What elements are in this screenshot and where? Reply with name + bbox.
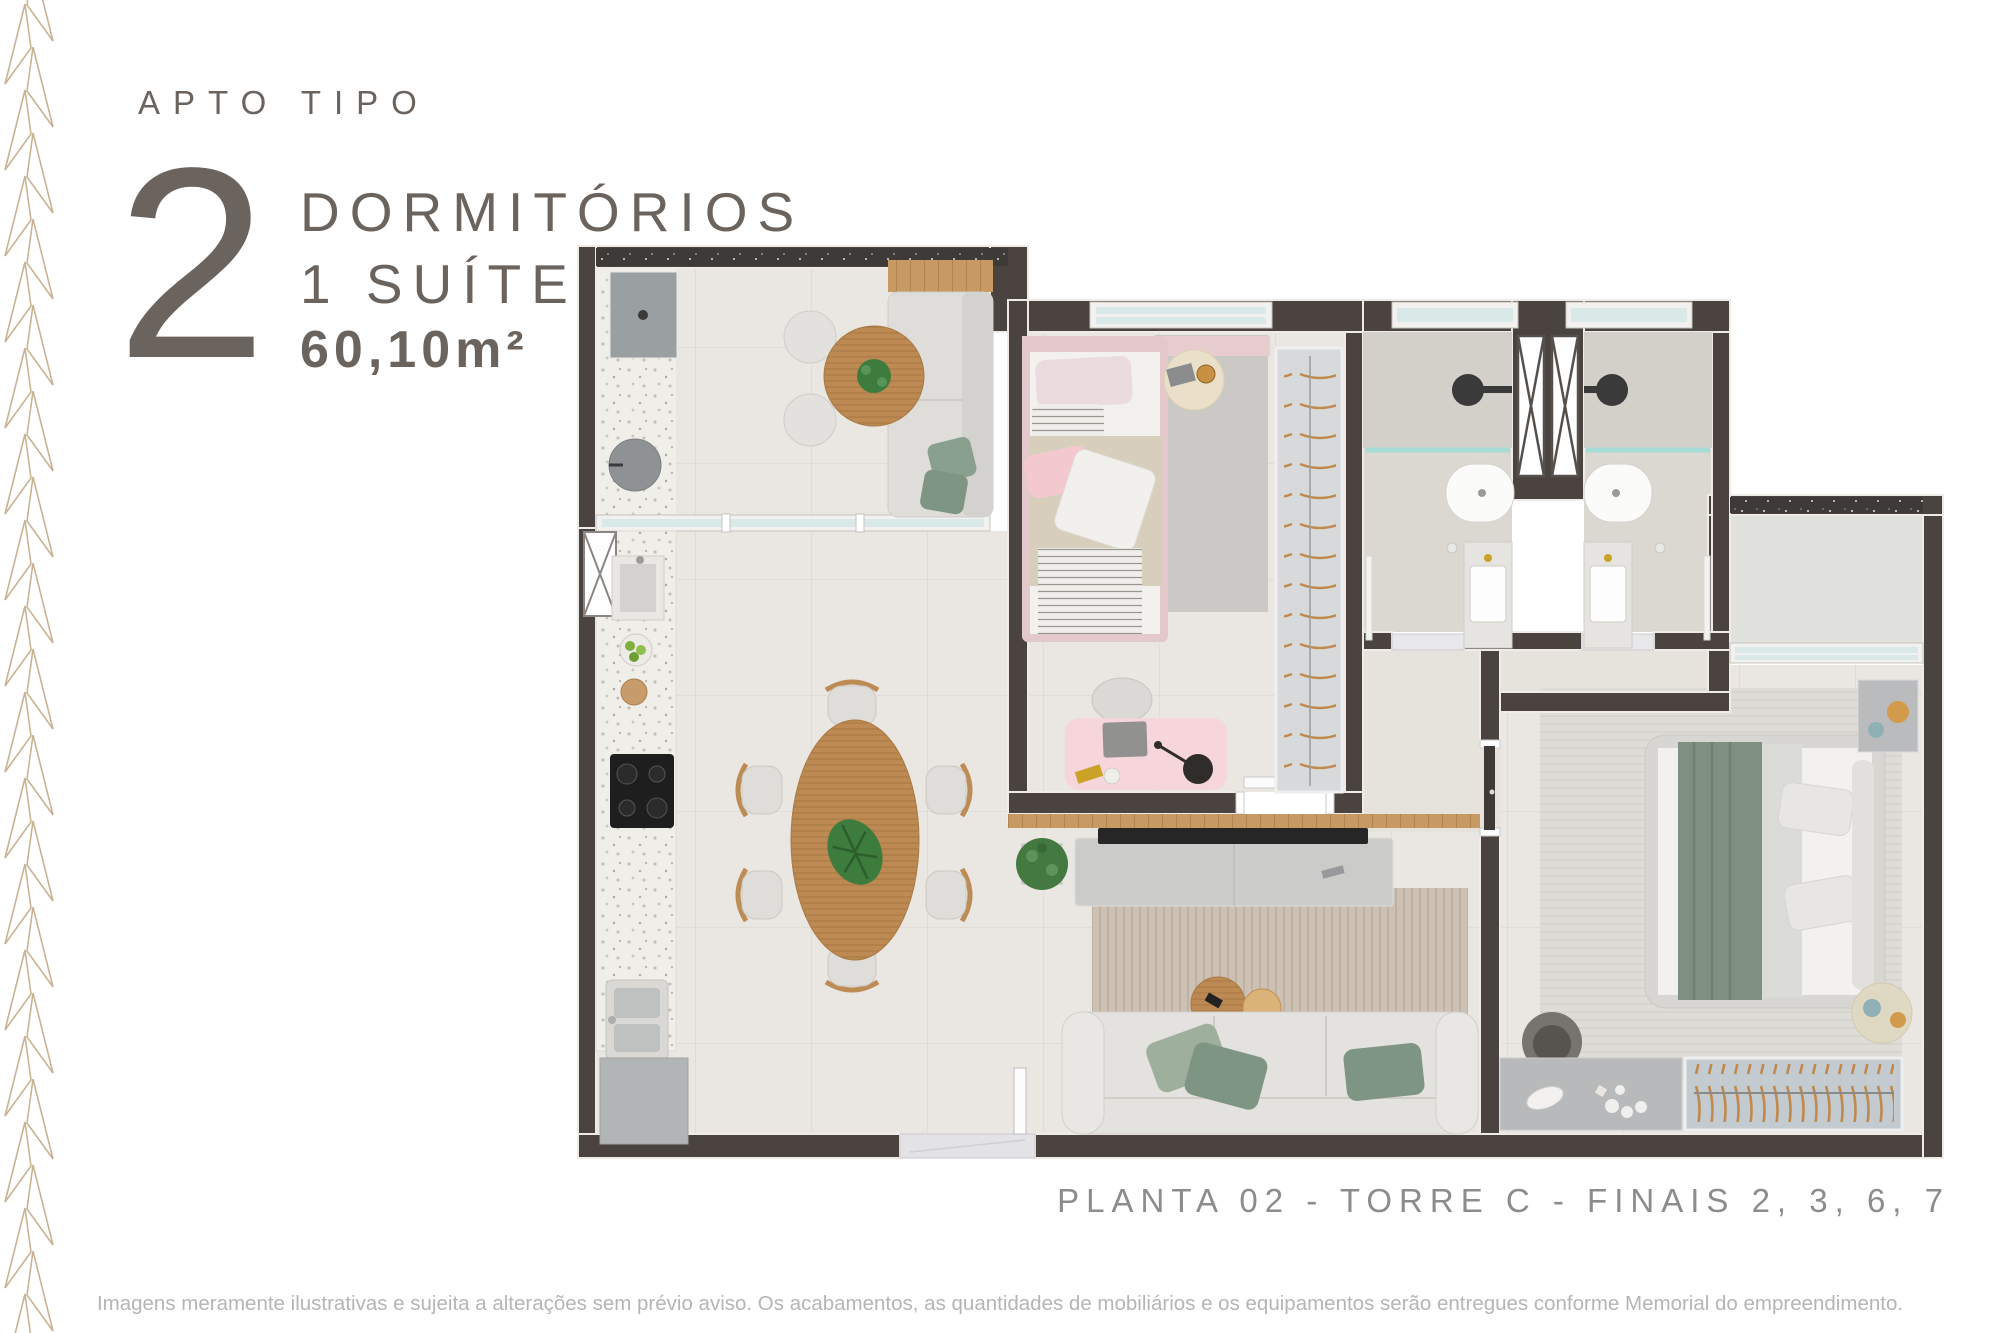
sofa [1062,1012,1478,1134]
bathroom1-door-threshold [1392,634,1464,650]
tv-console [1075,828,1393,906]
shower-head [1596,374,1628,406]
dining-chair [738,869,782,921]
folded-sheet [1762,744,1802,998]
paper-holder [1447,543,1457,553]
tv [1098,828,1368,844]
alcove-granite-wall-cap [1730,497,1923,513]
kitchen-cabinet [600,1058,688,1144]
dining-chair [926,764,970,816]
duct-shaft [584,532,616,616]
pillow [1035,356,1133,409]
bathroom1-window [1392,302,1518,328]
suite-dresser [1500,1058,1682,1130]
desk-vase [1104,768,1120,784]
pouf [784,394,836,446]
bedroom-wardrobe [1276,348,1342,792]
round-nightstand [1852,983,1912,1043]
bedroom-count-number: 2 [116,148,267,379]
nightstand-vase [1868,722,1884,738]
towel-bar [1704,556,1710,640]
green-throw [1678,742,1762,1000]
vanity-basin [1590,566,1626,622]
herringbone-leaf-pattern [0,0,72,1333]
dining-chair [826,682,878,726]
dining-chair [926,869,970,921]
desk-chair [1092,678,1152,722]
towel-bar [1366,556,1372,640]
suite-wardrobe [1685,1058,1902,1130]
plan-caption: PLANTA 02 - TORRE C - FINAIS 2, 3, 6, 7 [1057,1182,1950,1220]
floor-plant [1016,838,1068,890]
terrace-plant [857,359,891,393]
technical-alcove-floor [1730,515,1923,645]
suite-alcove-window [1730,643,1923,663]
faucet [1604,554,1612,562]
cooktop [610,754,674,828]
bedside-lamp [1197,365,1215,383]
floor-plan [560,230,1980,1180]
paper-holder [1655,543,1665,553]
prep-sink [612,556,664,620]
striped-throw [1038,548,1142,634]
faucet [1484,554,1492,562]
shower-head [1452,374,1484,406]
vanity-basin [1470,566,1506,622]
deck-strip [888,260,993,292]
disclaimer-text: Imagens meramente ilustrativas e sujeita… [0,1292,2000,1316]
laptop [1102,721,1147,758]
nightstand-lamp [1887,701,1909,723]
suite-label: 1 SUÍTE [300,252,578,316]
terrace-green-pillow-2 [919,468,969,515]
area-label: 60,10m² [300,320,529,380]
suite-pillow [1777,781,1855,837]
sofa-pillow [1342,1042,1425,1102]
dining-chair [738,764,782,816]
floorplan-marketing-page: APTO TIPO 2 DORMITÓRIOS 1 SUÍTE 60,10m² [0,0,2000,1333]
bedroom-window [1090,302,1272,328]
wood-shelf [1008,814,1480,828]
headboard-cushion [1852,760,1874,990]
kitchen-sink [606,980,668,1060]
bathroom2-window [1566,302,1692,328]
